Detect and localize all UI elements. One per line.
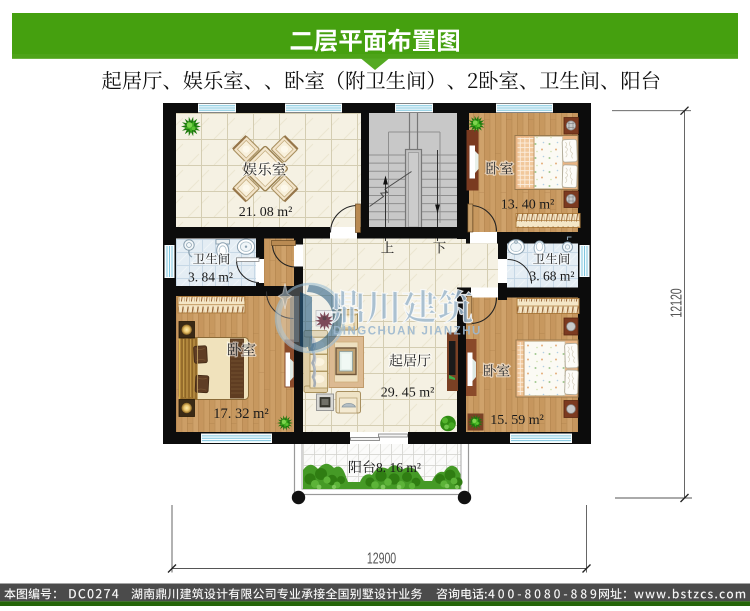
svg-text:12120: 12120 (667, 288, 685, 317)
svg-text:12900: 12900 (367, 549, 396, 567)
svg-text:3. 68 m²: 3. 68 m² (530, 269, 575, 284)
svg-text:3. 84 m²: 3. 84 m² (188, 270, 233, 285)
svg-text:21. 08 m²: 21. 08 m² (239, 205, 293, 220)
svg-text:13. 40 m²: 13. 40 m² (501, 198, 555, 213)
svg-text:8. 16 m²: 8. 16 m² (376, 460, 421, 475)
svg-text:17. 32 m²: 17. 32 m² (213, 406, 269, 422)
svg-text:DINGCHUAN JIANZHU: DINGCHUAN JIANZHU (333, 326, 482, 338)
svg-text:29. 45 m²: 29. 45 m² (381, 386, 435, 401)
svg-text:15. 59 m²: 15. 59 m² (490, 413, 544, 428)
